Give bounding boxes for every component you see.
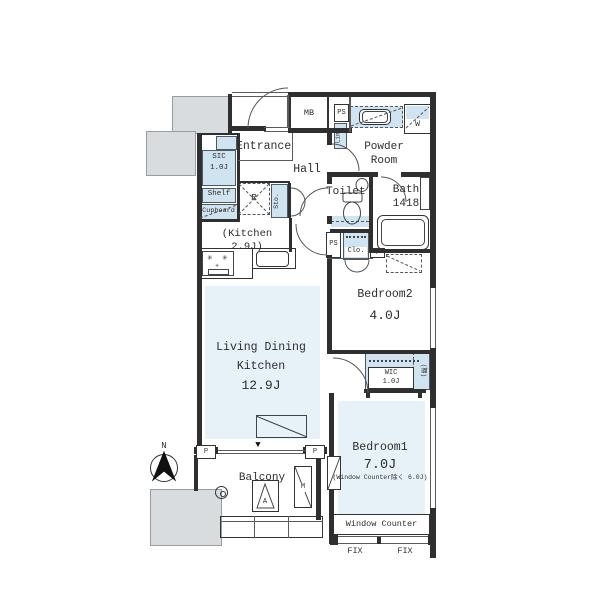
room-label-kitchen: (Kitchen 2.9J) (205, 228, 289, 254)
closet-label: Clo. (345, 247, 367, 257)
refrigerator-label: R (238, 192, 270, 204)
closet-door-arc (357, 260, 369, 272)
storage-door-arc (291, 188, 305, 202)
fix-label-right: FIX (391, 546, 419, 557)
ps-top-label: PS (334, 109, 349, 118)
room-size-bedroom2: 4.0J (345, 308, 425, 324)
wic-label: WIC 1.0J (368, 369, 414, 387)
room-label-ldk-line1: Living Dining (205, 341, 317, 355)
washer-label: W (404, 120, 431, 130)
toilet-door-arc (300, 188, 328, 216)
fix-label-left: FIX (341, 546, 369, 557)
room-label-entrance: Entrance (236, 140, 290, 154)
room-label-bath: Bath 1418 (386, 184, 426, 212)
table-diagonal (256, 416, 307, 437)
linen-label: Lin. (335, 126, 347, 147)
toilet-bowl (344, 202, 361, 224)
pillar-left-label: P (196, 448, 216, 457)
room-label-ldk-line2: Kitchen (205, 360, 317, 374)
meter-panel-label: M (297, 483, 309, 492)
wic-shelf-label: (棚) (416, 356, 427, 385)
bedroom2-fixture-diagonal (387, 256, 420, 271)
room-size-bedroom1: 7.0J (339, 458, 421, 475)
compass-needle (153, 452, 175, 480)
pillar-right-label: P (305, 448, 325, 457)
washbasin-diagonal (351, 108, 402, 126)
ps-mid-label: PS (326, 240, 341, 249)
compass-north-label: N (157, 441, 171, 452)
room-label-bedroom2: Bedroom2 (345, 288, 425, 302)
plan-linework (0, 0, 606, 601)
room-label-balcony: Balcony (230, 472, 294, 486)
room-label-powder-room: Powder Room (358, 141, 410, 169)
hall-ldk-door-arc (296, 224, 327, 255)
room-label-hall: Hall (291, 163, 323, 177)
room-note-bedroom1: (Window Counter除く 6.0J) (332, 474, 428, 482)
stove-burner-icon: ✳ (211, 262, 223, 270)
storage-sto-label: Sto. (273, 188, 285, 214)
shelf-label: Shelf (202, 190, 236, 199)
closet-door-arc (345, 260, 357, 272)
sic-label: SIC 1.0J (202, 152, 236, 173)
floor-plan: Entrance Hall Powder Room Toilet Bath 14… (0, 0, 606, 601)
room-label-toilet: Toilet (326, 186, 362, 200)
cupboard-label: Cupboard (199, 207, 238, 215)
room-label-bedroom1: Bedroom1 (339, 441, 421, 455)
pillar-small-label: P (370, 249, 385, 257)
meter-box-label: MB (289, 108, 329, 119)
powder-room-door-arc (332, 144, 359, 171)
hatch-label: A (258, 498, 272, 507)
entrance-door-arc (248, 88, 288, 128)
room-size-ldk: 12.9J (205, 378, 317, 394)
balcony-door-marker: ▼ (250, 440, 266, 451)
window-counter-label: Window Counter (337, 519, 426, 530)
bedroom1-door-arc (333, 358, 368, 393)
